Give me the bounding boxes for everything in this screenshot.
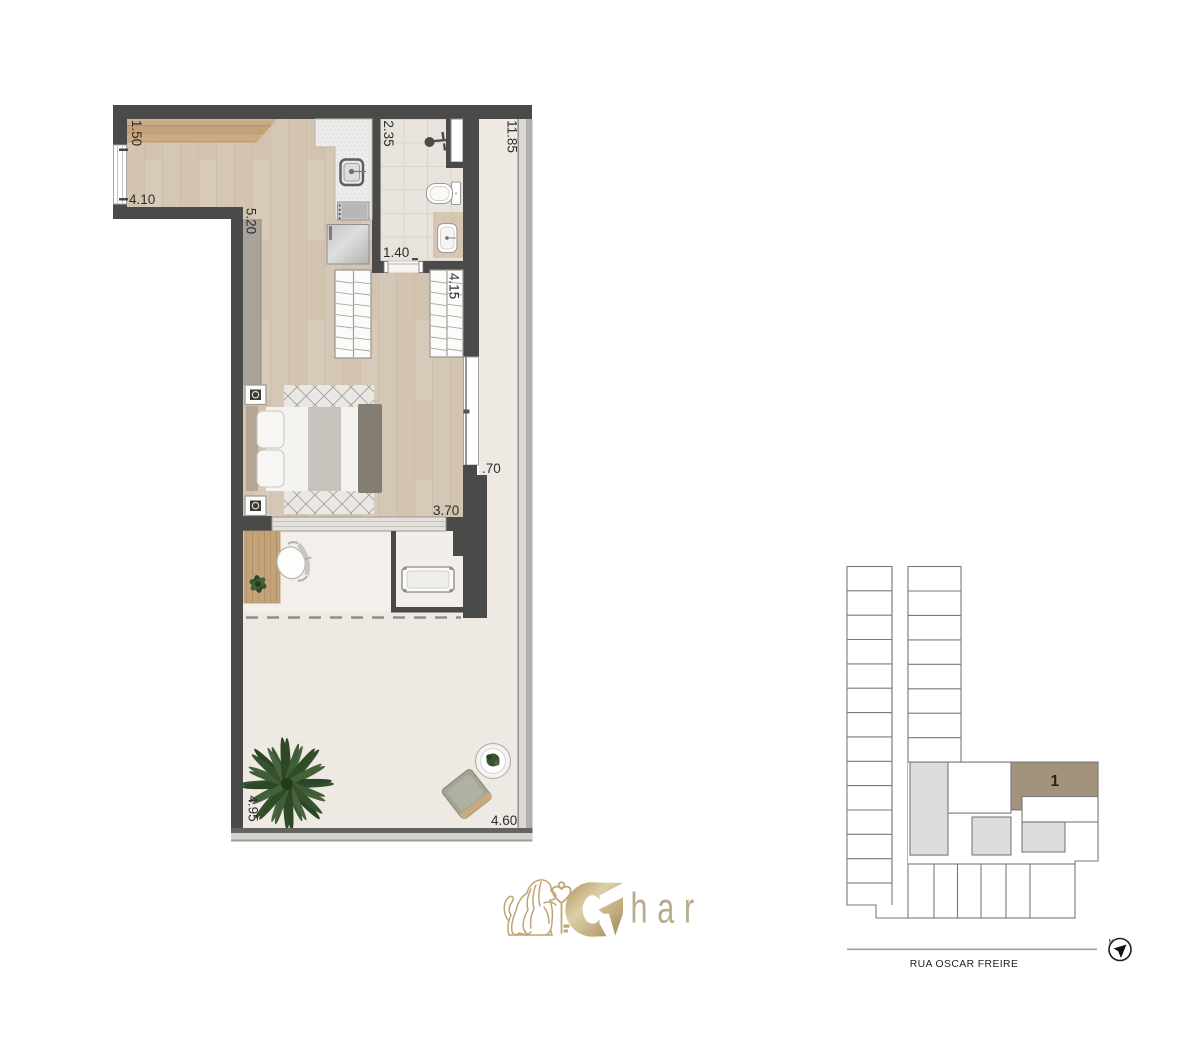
svg-text:4.95: 4.95: [245, 795, 260, 821]
svg-text:1.50: 1.50: [129, 120, 144, 146]
svg-text:.70: .70: [482, 461, 501, 476]
svg-text:1.40: 1.40: [383, 245, 409, 260]
svg-text:1: 1: [1051, 773, 1060, 790]
svg-text:4.15: 4.15: [446, 273, 461, 299]
svg-text:5.20: 5.20: [243, 208, 258, 234]
svg-text:4.10: 4.10: [129, 192, 155, 207]
svg-text:N: N: [1109, 940, 1113, 946]
svg-text:4.60: 4.60: [491, 813, 517, 828]
svg-text:har: har: [631, 883, 704, 931]
svg-text:11.85: 11.85: [504, 120, 519, 153]
svg-text:3.70: 3.70: [433, 503, 459, 518]
svg-text:2.35: 2.35: [381, 120, 396, 146]
svg-text:RUA OSCAR FREIRE: RUA OSCAR FREIRE: [910, 959, 1019, 970]
